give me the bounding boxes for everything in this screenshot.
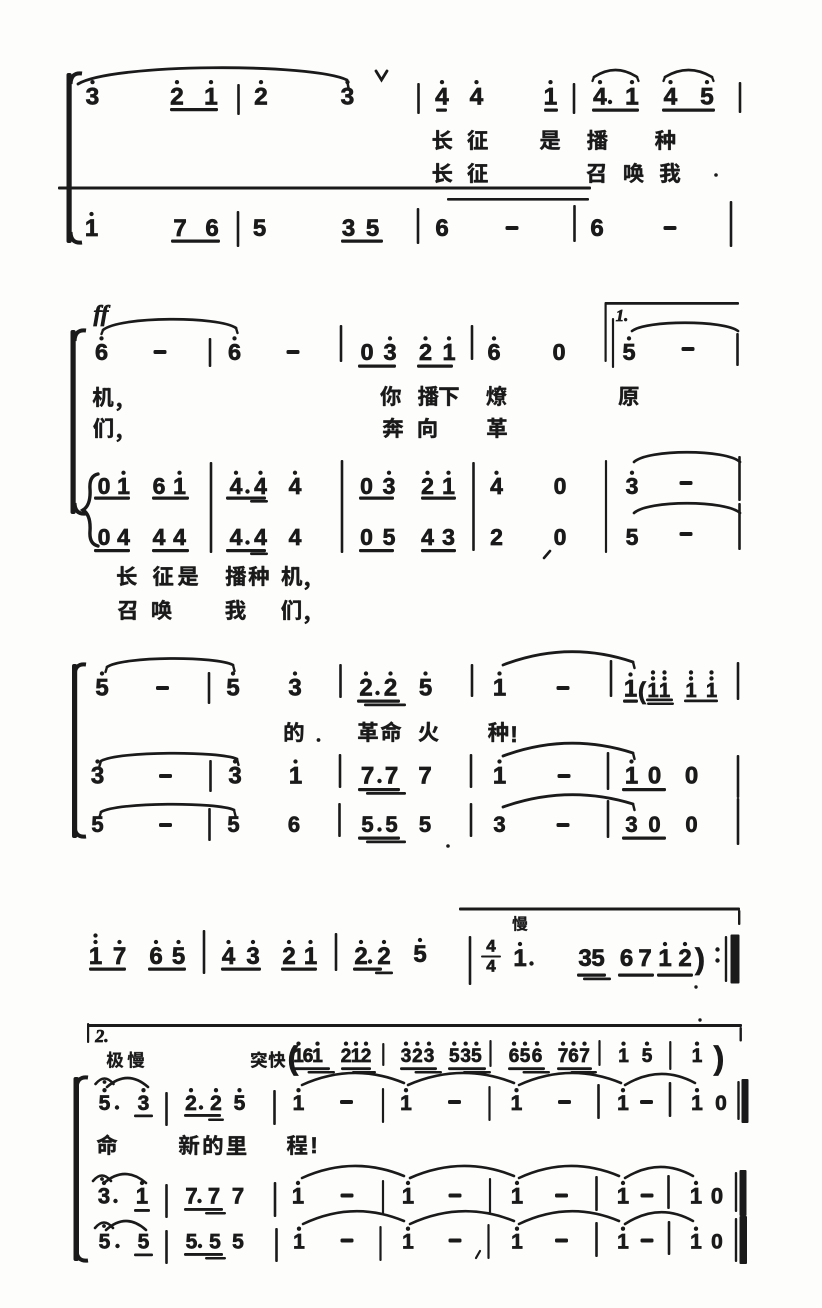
svg-text:6: 6 (95, 339, 108, 365)
svg-text:1: 1 (625, 84, 639, 111)
svg-text:5: 5 (91, 812, 103, 837)
svg-text:5: 5 (366, 215, 379, 242)
svg-text:5: 5 (419, 675, 432, 702)
svg-text:): ) (714, 1040, 725, 1076)
svg-text:3: 3 (341, 84, 355, 111)
svg-text:7: 7 (113, 943, 126, 970)
svg-text:6: 6 (288, 812, 300, 837)
svg-text:2: 2 (341, 1046, 352, 1067)
svg-text:2: 2 (359, 675, 372, 702)
svg-text:0: 0 (711, 1231, 723, 1254)
svg-text:7: 7 (385, 763, 398, 790)
svg-text:6: 6 (620, 945, 633, 972)
svg-text:5: 5 (626, 524, 639, 550)
svg-text:1: 1 (685, 680, 696, 702)
svg-text:5: 5 (186, 1231, 198, 1254)
svg-text:0: 0 (711, 1184, 723, 1209)
svg-text:1: 1 (400, 1092, 412, 1115)
svg-text:0: 0 (360, 473, 373, 499)
svg-text:5: 5 (419, 812, 431, 837)
svg-text:5: 5 (520, 1046, 531, 1067)
svg-text:2: 2 (282, 943, 295, 970)
svg-text:5: 5 (99, 1092, 111, 1115)
svg-text:5: 5 (253, 215, 266, 242)
svg-text:4: 4 (289, 473, 302, 499)
svg-text:2: 2 (419, 339, 432, 365)
svg-text:4: 4 (421, 524, 434, 550)
svg-text:4: 4 (173, 524, 186, 550)
svg-text:3: 3 (625, 812, 637, 837)
svg-text:1: 1 (691, 1092, 703, 1115)
svg-text:1: 1 (292, 1184, 304, 1209)
svg-text:7: 7 (579, 1046, 590, 1067)
svg-text:2: 2 (361, 1046, 372, 1067)
svg-text:3: 3 (460, 1046, 471, 1067)
svg-text:1: 1 (442, 339, 455, 365)
svg-text:1: 1 (289, 763, 302, 790)
svg-text:0: 0 (552, 339, 565, 365)
svg-text:1: 1 (442, 473, 455, 499)
svg-text:5: 5 (138, 1231, 150, 1254)
svg-text:1: 1 (493, 675, 506, 702)
svg-text:5: 5 (385, 812, 397, 837)
svg-text:7: 7 (232, 1184, 244, 1209)
svg-text:7: 7 (638, 945, 651, 972)
svg-text:3: 3 (86, 84, 100, 111)
svg-text:4: 4 (153, 524, 166, 550)
svg-text:0: 0 (360, 339, 373, 365)
svg-text:6: 6 (532, 1046, 543, 1067)
svg-text:0: 0 (98, 473, 111, 499)
svg-text:2: 2 (210, 1092, 222, 1115)
svg-text:3: 3 (401, 1046, 412, 1067)
svg-text:2: 2 (412, 1046, 423, 1067)
svg-text:3: 3 (138, 1092, 150, 1115)
svg-text:0: 0 (648, 812, 660, 837)
svg-text:3: 3 (228, 763, 241, 790)
svg-text:7: 7 (185, 1184, 197, 1209)
svg-text:5: 5 (471, 1046, 482, 1067)
svg-text:4: 4 (486, 957, 496, 976)
svg-text:1: 1 (511, 1231, 523, 1254)
svg-text:0: 0 (554, 473, 567, 499)
svg-text:4: 4 (435, 84, 449, 111)
svg-text:1: 1 (402, 1231, 414, 1254)
svg-text:5: 5 (232, 1231, 244, 1254)
svg-text:6: 6 (153, 473, 166, 499)
svg-text:1: 1 (117, 473, 130, 499)
svg-text:6: 6 (568, 1046, 579, 1067)
svg-text:5: 5 (234, 1092, 246, 1115)
svg-text:7: 7 (558, 1046, 569, 1067)
svg-text:4: 4 (222, 943, 236, 970)
svg-text:5: 5 (361, 812, 373, 837)
svg-text:2: 2 (490, 524, 503, 550)
svg-text:7: 7 (418, 763, 431, 790)
svg-text:4: 4 (664, 84, 678, 111)
svg-text:2: 2 (185, 1092, 197, 1115)
svg-text:7: 7 (361, 763, 374, 790)
svg-text:1: 1 (293, 1231, 305, 1254)
svg-text:4: 4 (470, 84, 484, 111)
svg-text:5: 5 (383, 524, 396, 550)
svg-text:4: 4 (593, 84, 607, 111)
svg-text:5: 5 (227, 812, 239, 837)
svg-text:5: 5 (95, 675, 108, 702)
svg-text:0: 0 (685, 812, 697, 837)
svg-text:1: 1 (624, 676, 637, 703)
svg-text:0: 0 (554, 524, 567, 550)
svg-text:1: 1 (544, 84, 558, 111)
svg-text:): ) (695, 943, 705, 976)
svg-text:0: 0 (685, 763, 698, 790)
svg-text:0: 0 (715, 1092, 727, 1115)
svg-text:1: 1 (136, 1184, 148, 1209)
svg-text:1: 1 (312, 1046, 323, 1067)
svg-text:0: 0 (648, 763, 661, 790)
svg-text:1: 1 (304, 943, 317, 970)
svg-text:4: 4 (254, 473, 267, 499)
svg-text:3: 3 (383, 473, 396, 499)
svg-text:3: 3 (578, 945, 591, 972)
svg-text:1: 1 (692, 1046, 703, 1067)
svg-text:5: 5 (99, 1231, 111, 1254)
svg-text:4: 4 (486, 937, 496, 956)
svg-text:1: 1 (617, 1231, 629, 1254)
svg-text:5: 5 (700, 84, 714, 111)
svg-text:3: 3 (246, 943, 259, 970)
svg-text:3: 3 (383, 339, 396, 365)
svg-text:ff: ff (94, 301, 111, 326)
svg-text:4: 4 (254, 524, 267, 550)
svg-text:(: ( (638, 678, 646, 705)
svg-text:1: 1 (706, 680, 717, 702)
svg-text:1: 1 (690, 1231, 702, 1254)
svg-text:!: ! (510, 722, 517, 747)
svg-text:0: 0 (98, 524, 111, 550)
svg-text:6: 6 (205, 215, 218, 242)
svg-text:1: 1 (625, 763, 638, 790)
svg-text:7: 7 (173, 215, 186, 242)
svg-text:4: 4 (490, 473, 503, 499)
svg-text:2: 2 (377, 943, 390, 970)
svg-text:1: 1 (85, 215, 98, 242)
svg-text:1.: 1. (616, 306, 629, 325)
svg-text:5: 5 (226, 675, 239, 702)
svg-text:1: 1 (293, 1092, 305, 1115)
svg-text:3: 3 (442, 524, 455, 550)
svg-text:3: 3 (91, 763, 104, 790)
svg-text:1: 1 (89, 943, 102, 970)
svg-text:5: 5 (642, 1046, 653, 1067)
svg-text:!: ! (310, 1133, 317, 1158)
svg-text:2: 2 (170, 84, 184, 111)
svg-text:1: 1 (617, 1184, 629, 1209)
svg-text:4: 4 (230, 524, 243, 550)
svg-text:1: 1 (511, 1184, 523, 1209)
svg-text:0: 0 (360, 524, 373, 550)
svg-text:6: 6 (590, 215, 603, 242)
svg-text:2: 2 (354, 943, 367, 970)
svg-text:1: 1 (690, 1184, 702, 1209)
svg-text:1: 1 (618, 1046, 629, 1067)
svg-text:1: 1 (173, 473, 186, 499)
svg-text:1: 1 (204, 84, 218, 111)
svg-text:5: 5 (209, 1231, 221, 1254)
svg-text:3: 3 (342, 215, 355, 242)
svg-text:3: 3 (288, 675, 301, 702)
svg-text:2: 2 (254, 84, 268, 111)
svg-text:7: 7 (208, 1184, 220, 1209)
svg-text:2: 2 (678, 945, 691, 972)
svg-text:2.: 2. (94, 1026, 109, 1046)
svg-text:6: 6 (149, 943, 162, 970)
svg-text:5: 5 (591, 945, 604, 972)
svg-text:3: 3 (493, 812, 505, 837)
svg-text:5: 5 (622, 339, 635, 365)
svg-text:1: 1 (658, 945, 671, 972)
svg-text:3: 3 (424, 1046, 435, 1067)
svg-text:2: 2 (421, 473, 434, 499)
svg-text:4: 4 (117, 524, 130, 550)
svg-text:5: 5 (449, 1046, 460, 1067)
svg-text:3: 3 (98, 1184, 110, 1209)
svg-text:3: 3 (626, 473, 639, 499)
svg-text:5: 5 (413, 941, 426, 968)
svg-text:1: 1 (513, 945, 526, 972)
svg-text:5: 5 (172, 943, 185, 970)
svg-text:2: 2 (384, 675, 397, 702)
svg-text:4: 4 (230, 473, 243, 499)
svg-text:6: 6 (487, 339, 500, 365)
svg-text:1: 1 (617, 1092, 629, 1115)
svg-text:6: 6 (435, 215, 448, 242)
svg-text:4: 4 (289, 524, 302, 550)
svg-text:1: 1 (511, 1092, 523, 1115)
svg-text:1: 1 (402, 1184, 414, 1209)
svg-text:6: 6 (509, 1046, 520, 1067)
svg-text:1: 1 (493, 763, 506, 790)
svg-text:6: 6 (228, 339, 241, 365)
